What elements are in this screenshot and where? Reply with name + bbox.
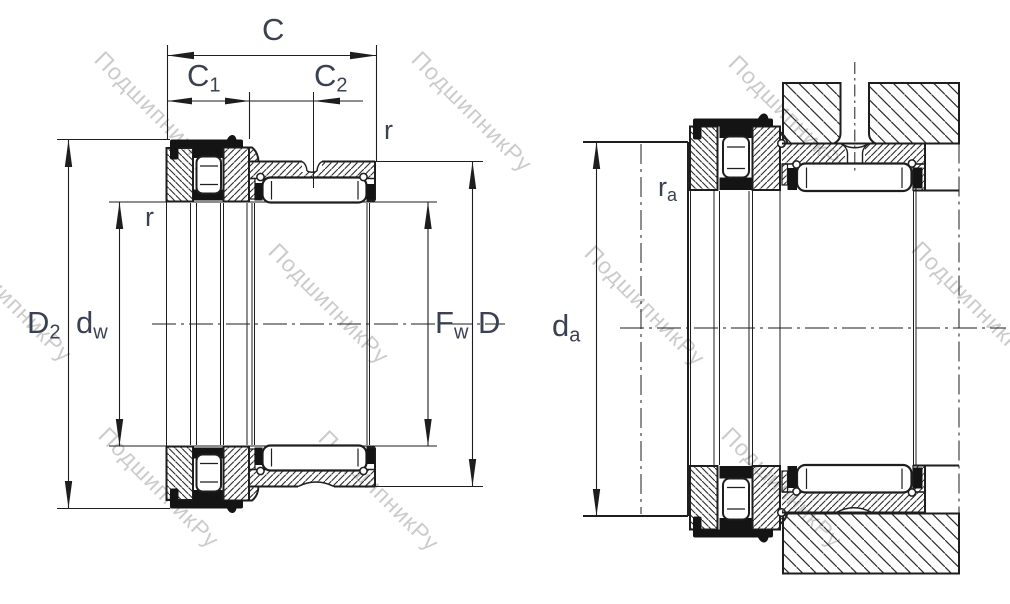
retainer-detail	[360, 173, 367, 180]
thrust-washer-inner	[753, 127, 781, 191]
dim-label-r-bore: r	[145, 204, 154, 231]
dim-label-da: da	[552, 310, 580, 346]
thrust-ball	[723, 137, 749, 178]
needle-rollers	[263, 446, 367, 471]
needle-cage-end	[914, 168, 923, 189]
washer-shoulder	[249, 148, 259, 162]
retainer-detail	[793, 161, 800, 168]
thrust-washer-inner	[753, 466, 781, 530]
technical-drawing-page: ПодшипникРу ПодшипникРу ПодшипникРу Подш…	[0, 0, 1010, 604]
thrust-washer-inner	[224, 447, 250, 501]
retainer-detail	[908, 160, 915, 167]
dim-label-C1: C1	[187, 60, 221, 96]
washer-shoulder	[249, 487, 259, 501]
retainer-detail	[257, 173, 264, 180]
thrust-ball	[723, 479, 749, 520]
left-lower-section	[167, 446, 376, 514]
thrust-cage-bar	[720, 178, 753, 191]
needle-cup	[865, 144, 925, 165]
left-dimensions	[57, 45, 483, 509]
dim-label-Fw: Fw	[435, 307, 468, 343]
left-upper-section	[167, 135, 376, 203]
dim-label-ra: ra	[658, 174, 677, 204]
needle-rollers	[263, 178, 367, 203]
dim-label-dw: dw	[76, 307, 108, 343]
retainer-detail	[360, 467, 367, 474]
needle-cage-end	[914, 468, 923, 489]
needle-cup	[782, 144, 845, 165]
needle-cage-end	[255, 183, 263, 201]
cup-flange	[782, 164, 788, 185]
dim-label-C: C	[262, 14, 284, 45]
cup-flange	[249, 449, 255, 470]
needle-cage-end	[788, 466, 798, 488]
retainer-detail	[908, 489, 915, 496]
dim-label-C2: C2	[314, 60, 348, 96]
thrust-ball	[197, 455, 222, 492]
cup-flange	[249, 179, 255, 200]
dim-label-r-outer: r	[384, 117, 393, 144]
dim-label-D: D	[478, 307, 500, 338]
cup-flange	[782, 471, 788, 492]
right-view-mounting	[583, 62, 1006, 574]
needle-rollers	[797, 465, 912, 493]
needle-cage-end	[255, 448, 263, 466]
retainer-detail	[257, 467, 264, 474]
needle-rollers	[797, 164, 912, 192]
housing-block-top	[869, 83, 959, 144]
retainer-detail	[793, 488, 800, 495]
thrust-washer-inner	[224, 148, 250, 202]
needle-cage-end	[788, 168, 798, 190]
left-view-cross-section	[57, 45, 505, 513]
thrust-cage-bar	[720, 466, 753, 479]
needle-cage-end	[367, 184, 375, 200]
bearing-drawing-svg	[0, 0, 1010, 604]
dim-label-D2: D2	[27, 307, 61, 343]
needle-cage-end	[367, 449, 375, 465]
housing-block-top	[783, 83, 841, 144]
thrust-ball	[197, 157, 222, 194]
housing-block-bottom	[783, 514, 959, 574]
